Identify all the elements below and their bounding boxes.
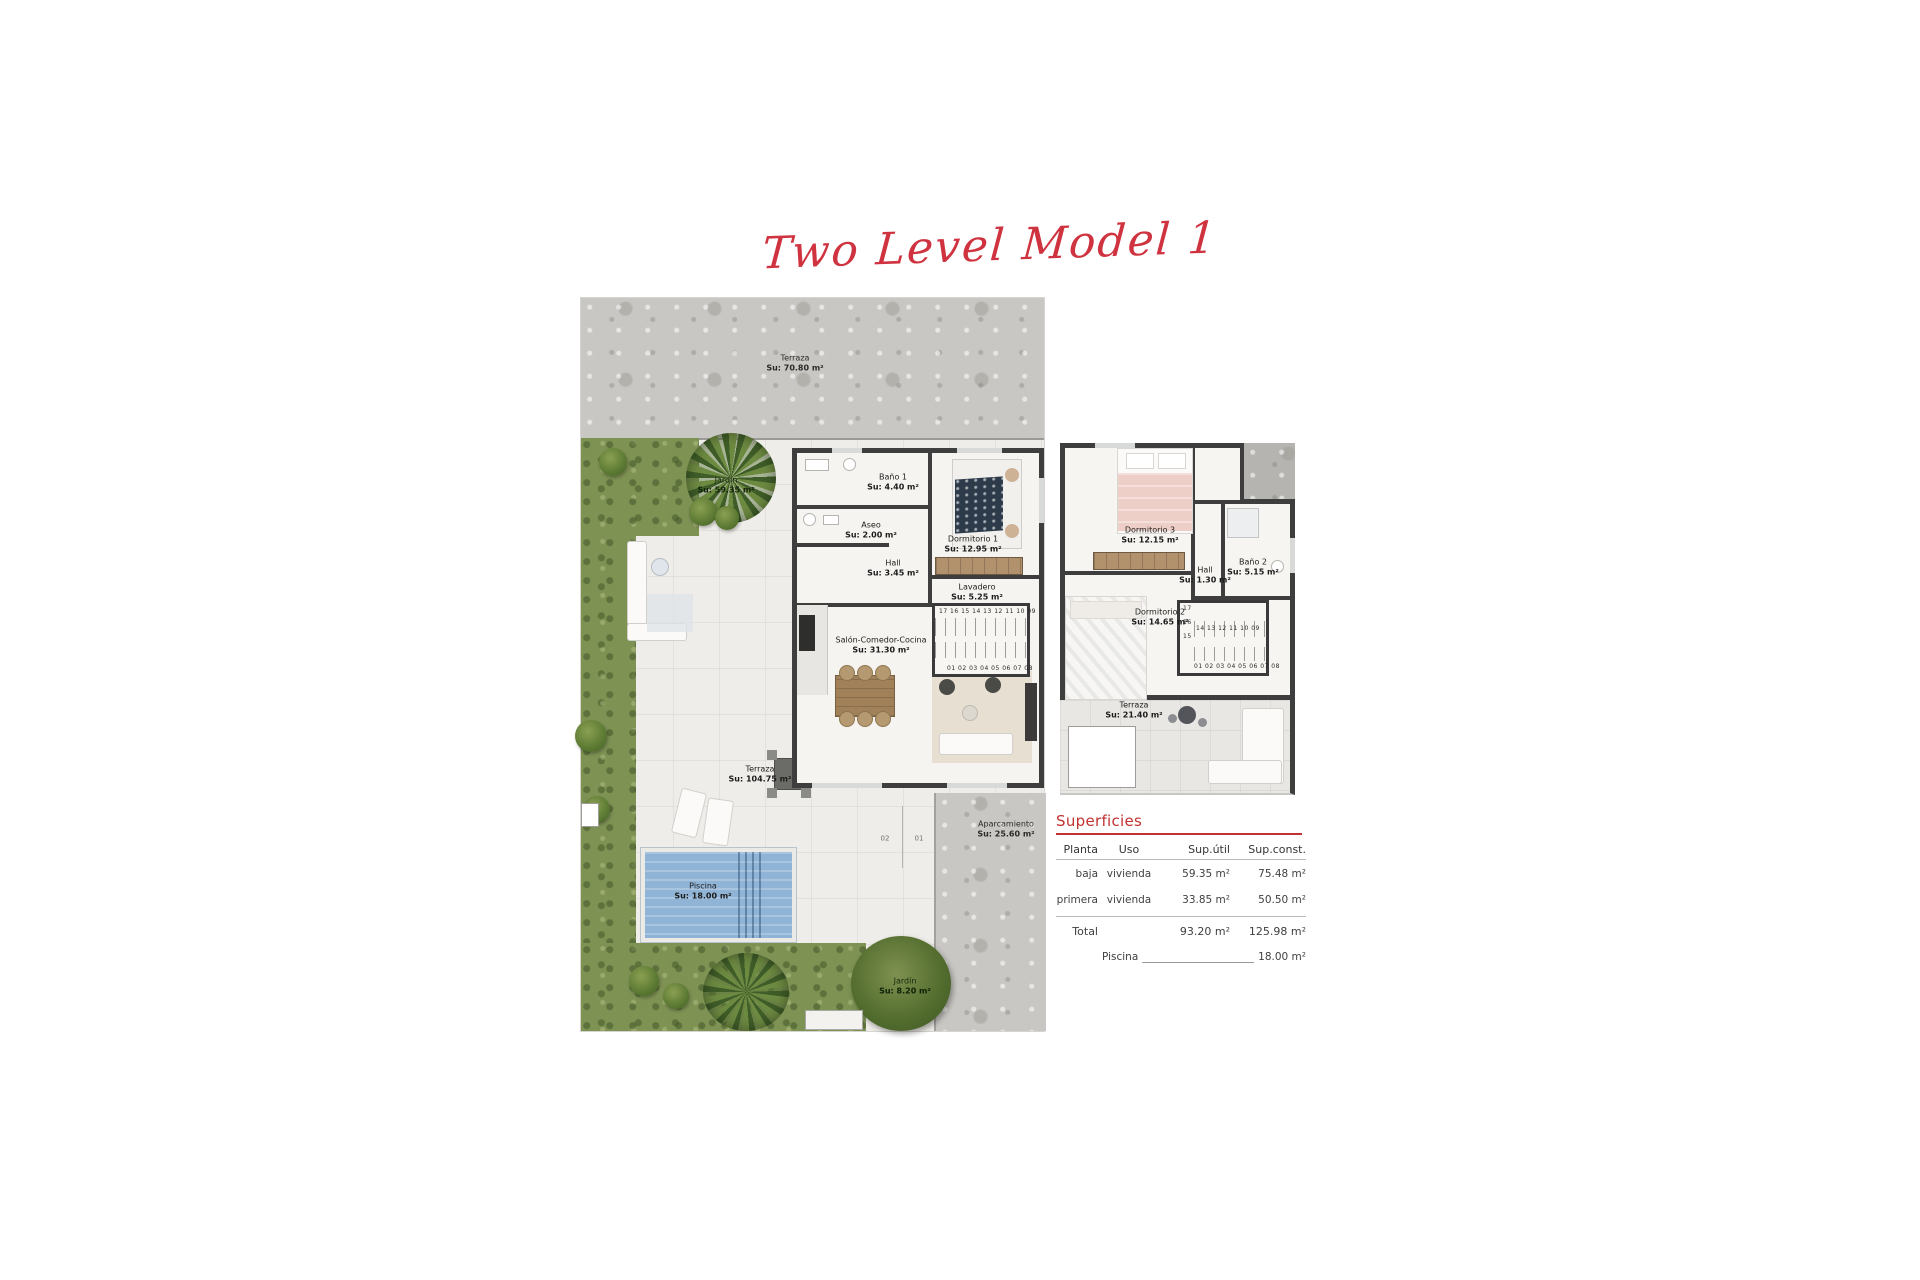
parking-slot-number: 01: [915, 835, 924, 843]
staircase-ground: 17 16 15 14 13 12 11 10 09 01 02 03 04 0…: [932, 603, 1030, 677]
room-label-dormitorio2: Dormitorio 2 Su: 14.65 m²: [1131, 608, 1188, 629]
col-header-planta: Planta: [1056, 843, 1100, 860]
cell-planta: primera: [1056, 880, 1100, 906]
areas-table: Superficies Planta Uso Sup.útil Sup.cons…: [1056, 812, 1306, 963]
cell-const: 50.50 m²: [1230, 880, 1306, 906]
wall-segment: [928, 575, 1044, 579]
table-separator: [1056, 906, 1306, 917]
cell-util: 33.85 m²: [1158, 880, 1230, 906]
dining-chair: [875, 665, 891, 681]
room-label-terraza-first: Terraza Su: 21.40 m²: [1105, 701, 1162, 722]
room-label-hall: Hall Su: 3.45 m²: [867, 559, 919, 580]
total-const: 125.98 m²: [1230, 917, 1306, 938]
sofa: [939, 733, 1013, 755]
room-label-aseo: Aseo Su: 2.00 m²: [845, 521, 897, 542]
outdoor-sofa: [1208, 760, 1282, 784]
pool-steps: [738, 852, 764, 938]
room-label-piscina: Piscina Su: 18.00 m²: [674, 882, 731, 903]
terrace-void: [1068, 726, 1136, 788]
bush: [629, 966, 659, 996]
pillow: [1158, 453, 1186, 469]
duvet: [955, 476, 1003, 533]
cell-util: 59.35 m²: [1158, 860, 1230, 880]
room-label-jardin-left: Jardín Su: 59.35 m²: [697, 476, 754, 497]
wardrobe: [1093, 552, 1185, 570]
kitchen-appliances: [799, 615, 815, 651]
bush: [715, 506, 739, 530]
floor-plan-ground: 02 01: [581, 298, 1044, 1031]
outdoor-chair: [767, 750, 777, 760]
parking-slot-number: 02: [881, 835, 890, 843]
tv-unit: [1025, 683, 1037, 741]
parking-divider: [902, 806, 903, 868]
col-header-sup-util: Sup.útil: [1158, 843, 1230, 860]
floor-plan-first: 17 16 15 14 13 12 11 10 09 01 02 03 04 0…: [1060, 443, 1295, 795]
wall-segment: [797, 543, 889, 547]
col-header-uso: Uso: [1100, 843, 1158, 860]
coffee-table: [651, 558, 669, 576]
dining-chair: [839, 665, 855, 681]
gravel-roof-patch: [1240, 443, 1295, 503]
room-label-hall-first: Hall Su: 1.30 m²: [1179, 566, 1231, 587]
bed-dormitorio-3: [1117, 448, 1193, 534]
sink: [823, 515, 839, 525]
outdoor-chair: [1198, 718, 1207, 727]
room-label-dormitorio1: Dormitorio 1 Su: 12.95 m²: [944, 535, 1001, 556]
cell-const: 75.48 m²: [1230, 860, 1306, 880]
outdoor-chair: [1168, 714, 1177, 723]
toilet: [803, 513, 816, 526]
piscina-label: Piscina: [1102, 951, 1138, 963]
bush: [599, 448, 627, 476]
pillow: [1005, 524, 1019, 538]
bathroom-sink: [805, 459, 829, 471]
armchair: [939, 679, 955, 695]
dining-chair: [875, 711, 891, 727]
toilet: [843, 458, 856, 471]
outdoor-rug: [647, 594, 693, 632]
col-header-sup-const: Sup.const.: [1230, 843, 1306, 860]
bush: [575, 720, 607, 752]
room-label-bano2: Baño 2 Su: 5.15 m²: [1227, 558, 1279, 579]
stair-numbers-down: 01 02 03 04 05 06 07 08: [1194, 663, 1280, 670]
room-label-terraza-top: Terraza Su: 70.80 m²: [766, 354, 823, 375]
stair-steps: [935, 618, 1027, 636]
areas-table-grid: Planta Uso Sup.útil Sup.const. baja vivi…: [1056, 843, 1306, 938]
terrace-first: [1060, 700, 1295, 795]
window: [1039, 478, 1044, 523]
garden-top-left: [581, 438, 699, 536]
outdoor-sofa: [627, 541, 647, 625]
wall-segment: [797, 505, 932, 509]
total-util: 93.20 m²: [1158, 917, 1230, 938]
utility-box: [581, 803, 599, 827]
duvet-pink: [1118, 473, 1192, 531]
wall-segment: [1191, 500, 1290, 504]
side-table: [962, 705, 978, 721]
room-label-jardin-bottom: Jardín Su: 8.20 m²: [879, 977, 931, 998]
cell-uso: vivienda: [1100, 880, 1158, 906]
room-label-aparcamiento: Aparcamiento Su: 25.60 m²: [977, 820, 1034, 841]
cell-planta: baja: [1056, 860, 1100, 880]
pillow: [1126, 453, 1154, 469]
bush: [663, 983, 689, 1009]
room-label-dormitorio3: Dormitorio 3 Su: 12.15 m²: [1121, 526, 1178, 547]
wardrobe: [935, 557, 1023, 575]
wall-segment: [1065, 571, 1193, 575]
bush: [689, 498, 717, 526]
stair-steps: [935, 642, 1027, 658]
stair-numbers-down: 01 02 03 04 05 06 07 08: [947, 665, 1033, 672]
staircase-first: 17 16 15 14 13 12 11 10 09 01 02 03 04 0…: [1177, 600, 1269, 676]
wall-segment: [928, 453, 932, 607]
window: [832, 448, 862, 453]
outdoor-chair: [767, 788, 777, 798]
dining-chair: [857, 665, 873, 681]
window: [1290, 538, 1295, 573]
window: [957, 448, 1002, 453]
room-label-salon: Salón-Comedor-Cocina Su: 31.30 m²: [836, 636, 927, 657]
palm-tree: [703, 953, 789, 1031]
entrance-gate: [805, 1010, 863, 1030]
piscina-value: 18.00 m²: [1258, 951, 1306, 963]
red-rule: [1056, 833, 1302, 835]
outdoor-table: [1178, 706, 1196, 724]
room-label-lavadero: Lavadero Su: 5.25 m²: [951, 583, 1003, 604]
stair-steps: [1194, 647, 1266, 661]
piscina-leader-line: [1142, 950, 1254, 963]
armchair: [985, 677, 1001, 693]
window: [947, 783, 1007, 788]
piscina-row: Piscina 18.00 m²: [1056, 950, 1306, 963]
window: [812, 783, 882, 788]
stair-numbers-up: 14 13 12 11 10 09: [1196, 625, 1260, 632]
room-label-terraza-main: Terraza Su: 104.75 m²: [729, 765, 792, 786]
areas-table-title: Superficies: [1056, 812, 1306, 830]
dining-chair: [857, 711, 873, 727]
shower-tray: [1227, 508, 1259, 538]
outdoor-chair: [801, 788, 811, 798]
floor-plan-sheet: Two Level Model 1: [0, 0, 1920, 1280]
building-ground: 17 16 15 14 13 12 11 10 09 01 02 03 04 0…: [792, 448, 1044, 788]
building-first: 17 16 15 14 13 12 11 10 09 01 02 03 04 0…: [1060, 443, 1295, 700]
stair-number: 15: [1183, 633, 1192, 640]
dining-chair: [839, 711, 855, 727]
total-label: Total: [1056, 917, 1100, 938]
stair-numbers-up: 17 16 15 14 13 12 11 10 09: [939, 608, 1036, 615]
page-title: Two Level Model 1: [760, 216, 1123, 280]
pillow: [1005, 468, 1019, 482]
cell-uso: vivienda: [1100, 860, 1158, 880]
room-label-bano1: Baño 1 Su: 4.40 m²: [867, 473, 919, 494]
